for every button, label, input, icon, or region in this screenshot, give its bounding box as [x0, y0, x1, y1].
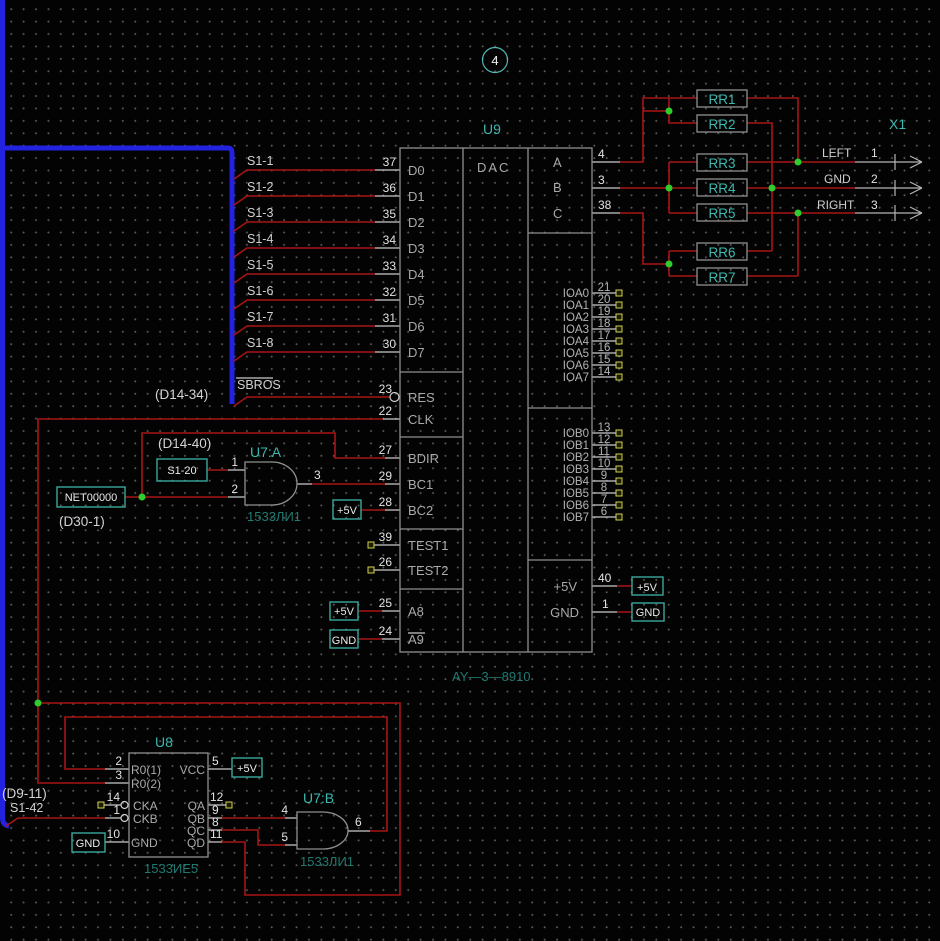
u8-pin-name-qd: QD [187, 836, 205, 850]
u9-pin-name-clk: CLK [408, 412, 434, 427]
u9-pin-name-d6: D6 [408, 319, 425, 334]
u9-pin-name-ioa5: IOA5 [563, 348, 589, 360]
u9-pin-name-ioa7: IOA7 [563, 372, 589, 384]
u9-pin-num-7: 7 [601, 494, 607, 506]
qb-qc-nets[interactable] [222, 818, 285, 845]
u9-pin-num-26: 26 [379, 555, 393, 569]
u9-pin-name-iob7: IOB7 [563, 512, 589, 524]
u8-pin-num-10: 10 [107, 827, 121, 841]
u9-pin-num-1: 1 [602, 597, 609, 611]
u9-core-label: DAC [477, 160, 510, 175]
u7b-part: 1533ЛИ1 [300, 854, 354, 869]
u7b-pin-6: 6 [355, 815, 362, 829]
u9-pin-name-b: B [553, 180, 562, 195]
u9-pin-num-9: 9 [601, 470, 607, 482]
s1-42-net[interactable] [6, 818, 105, 826]
u8-pin-num-5: 5 [212, 754, 219, 768]
label-d14-34: (D14-34) [155, 387, 208, 402]
net-label-s1-3[interactable]: S1-3 [247, 206, 273, 220]
u8-pin-num-2: 2 [115, 754, 122, 768]
u7a-pin-3: 3 [314, 468, 321, 482]
u9-pin-name-test2: TEST2 [408, 563, 448, 578]
s1-20-label[interactable]: S1-20 [167, 465, 196, 477]
resistor-output-nets[interactable] [747, 98, 855, 276]
u8-pin-num-14: 14 [107, 790, 121, 804]
u9-pin-name-a: A [553, 155, 562, 170]
u9-pin-num-30: 30 [383, 337, 397, 351]
u9-pin-name-ioa2: IOA2 [563, 312, 589, 324]
x1-pin-num-3: 3 [871, 198, 878, 212]
x1-pin-num-1: 1 [871, 146, 878, 160]
u9-pin-name-iob4: IOB4 [563, 476, 590, 488]
x1-ref: X1 [889, 116, 906, 132]
u9-pin-num-20: 20 [598, 294, 611, 306]
u7a-part: 1533ЛИ1 [247, 509, 301, 524]
u9-pin-name-res: RES [408, 390, 435, 405]
x1-pin-name-gnd: GND [824, 172, 851, 186]
u9-pin-name-bc1: BC1 [408, 477, 433, 492]
rr5-label[interactable]: RR5 [708, 206, 735, 221]
u9-pin-name-iob3: IOB3 [563, 464, 589, 476]
cka-inversion-bubble [121, 802, 128, 809]
u9-pin-num-18: 18 [598, 318, 611, 330]
u9-pin-name-bdir: BDIR [408, 451, 439, 466]
u9-pin-name-iob0: IOB0 [563, 428, 589, 440]
u9-pin-name-ioa4: IOA4 [563, 336, 590, 348]
rr1-label[interactable]: RR1 [708, 92, 735, 107]
x1-pin-num-2: 2 [871, 172, 878, 186]
p5v-label-a8[interactable]: +5V [334, 606, 355, 618]
u8-pin-name-r02: R0(2) [131, 777, 161, 791]
u8-pin-num-3: 3 [115, 768, 122, 782]
rr7-label[interactable]: RR7 [708, 270, 735, 285]
u9-pin-num-22: 22 [379, 404, 393, 418]
u9-pin-num-8: 8 [601, 482, 607, 494]
u9-pin-name-d5: D5 [408, 293, 425, 308]
net-label-s1-7[interactable]: S1-7 [247, 310, 273, 324]
u7b-gate-body[interactable] [297, 812, 348, 849]
u9-pin-name-a8: A8 [408, 604, 424, 619]
u8-pin-name-cka: CKA [133, 799, 158, 813]
u8-pin-num-11: 11 [210, 827, 223, 841]
u8-pin-name-gnd: GND [131, 836, 158, 850]
unconnected-pin-squares [98, 290, 622, 808]
u9-pin-name-ioa3: IOA3 [563, 324, 589, 336]
bus-top[interactable] [0, 148, 232, 404]
u7b-pin-5: 5 [281, 830, 288, 844]
net-label-s1-1[interactable]: S1-1 [247, 154, 273, 168]
rr3-label[interactable]: RR3 [708, 156, 735, 171]
u9-pin-num-25: 25 [379, 596, 393, 610]
u9-pin-name-p5v: +5V [554, 579, 578, 594]
u9-pin-num-37: 37 [383, 155, 397, 169]
u8-pin-name-r01: R0(1) [131, 763, 161, 777]
u9-pin-num-32: 32 [383, 285, 397, 299]
schematic-canvas[interactable]: 4 U9 DAC AY—3—8910 D0 D1 D2 D3 D4 D5 D6 … [0, 0, 940, 941]
u9-pin-num-12: 12 [598, 434, 611, 446]
u9-pin-num-19: 19 [598, 306, 611, 318]
u9-pin-name-gnd: GND [550, 605, 579, 620]
u9-pin-num-17: 17 [598, 330, 611, 342]
u8-pin-num-1: 1 [113, 803, 120, 817]
u9-pin-name-c: C [553, 206, 562, 221]
u9-pin-num-11: 11 [598, 446, 610, 458]
u9-pin-num-40: 40 [598, 571, 612, 585]
pin-stubs [104, 162, 620, 845]
connector-lines [855, 154, 922, 221]
u9-pin-name-iob6: IOB6 [563, 500, 589, 512]
u9-pin-num-13: 13 [598, 422, 611, 434]
ckb-inversion-bubble [121, 815, 128, 822]
gnd-label-u8[interactable]: GND [76, 838, 101, 850]
net-label-sbros[interactable]: SBROS [237, 378, 281, 392]
u9-pin-num-24: 24 [379, 624, 393, 638]
u8-pin-name-vcc: VCC [180, 763, 206, 777]
rr6-label[interactable]: RR6 [708, 245, 735, 260]
u9-pin-name-d2: D2 [408, 215, 425, 230]
gnd-label-pin1[interactable]: GND [636, 607, 661, 619]
u9-pin-name-ioa1: IOA1 [563, 300, 589, 312]
u8-pin-name-ckb: CKB [133, 812, 158, 826]
u9-pin-name-d0: D0 [408, 163, 425, 178]
u8-ref: U8 [155, 734, 173, 750]
label-d14-40: (D14-40) [158, 436, 211, 451]
net-label-s1-6[interactable]: S1-6 [247, 284, 273, 298]
p5v-label-pin40[interactable]: +5V [637, 582, 658, 594]
u9-pin-name-test1: TEST1 [408, 538, 448, 553]
net-label-s1-5[interactable]: S1-5 [247, 258, 273, 272]
x1-pin-name-right: RIGHT [817, 198, 855, 212]
u7b-pin-4: 4 [281, 803, 288, 817]
label-d9-11: (D9-11) [2, 786, 47, 801]
u9-pin-num-39: 39 [379, 530, 393, 544]
u9-pin-num-16: 16 [598, 342, 611, 354]
u9-pin-num-4: 4 [598, 147, 605, 161]
u9-pin-num-35: 35 [383, 207, 397, 221]
u9-pin-num-10: 10 [598, 458, 611, 470]
net-label-s1-8[interactable]: S1-8 [247, 336, 273, 350]
u9-pin-name-a9: A9 [408, 632, 424, 647]
u9-pin-num-14: 14 [598, 366, 611, 378]
u7a-pin-2: 2 [231, 482, 238, 496]
net00000-label[interactable]: NET00000 [65, 492, 118, 504]
sheet-number: 4 [491, 53, 498, 68]
p5v-label-bc2[interactable]: +5V [337, 505, 358, 517]
u7a-ref: U7:A [250, 444, 282, 460]
label-d30-1: (D30-1) [59, 514, 105, 529]
u9-ref: U9 [483, 121, 501, 137]
u9-pin-name-iob2: IOB2 [563, 452, 589, 464]
net-label-s1-2[interactable]: S1-2 [247, 180, 273, 194]
u9-pin-num-38: 38 [598, 198, 612, 212]
net-label-s1-4[interactable]: S1-4 [247, 232, 273, 246]
u9-pin-name-d7: D7 [408, 345, 425, 360]
u9-pin-num-3: 3 [598, 173, 605, 187]
u9-pin-name-ioa6: IOA6 [563, 360, 589, 372]
u9-pin-num-34: 34 [383, 233, 397, 247]
u9-pin-num-23: 23 [379, 382, 393, 396]
u9-pin-num-15: 15 [598, 354, 611, 366]
channel-a-net[interactable] [620, 98, 697, 162]
rr2-label[interactable]: RR2 [708, 117, 735, 132]
u9-pin-num-29: 29 [379, 469, 393, 483]
u8-pin-num-12: 12 [210, 790, 224, 804]
u9-part: AY—3—8910 [452, 669, 531, 684]
u7a-pin-1: 1 [231, 455, 238, 469]
x1-pin-name-left: LEFT [822, 146, 852, 160]
bus-left-edge[interactable] [3, 0, 10, 826]
u9-pin-num-21: 21 [598, 282, 611, 294]
u9-pin-num-6: 6 [601, 506, 607, 518]
u9-pin-name-d4: D4 [408, 267, 425, 282]
addr-power-net[interactable] [358, 586, 632, 639]
channel-c-net[interactable] [620, 213, 697, 276]
u9-pin-name-iob1: IOB1 [563, 440, 589, 452]
u9-pin-name-d3: D3 [408, 241, 425, 256]
u7a-gate-body[interactable] [245, 462, 297, 505]
gnd-label-a9[interactable]: GND [332, 635, 357, 647]
u9-pin-num-28: 28 [379, 495, 393, 509]
u9-pin-name-d1: D1 [408, 189, 425, 204]
channel-b-net[interactable] [620, 162, 697, 213]
u8-part: 1533ИЕ5 [144, 861, 198, 876]
u7b-ref: U7:B [303, 790, 334, 806]
u9-pin-name-bc2: BC2 [408, 503, 433, 518]
u9-pin-num-31: 31 [383, 311, 397, 325]
u8-pin-name-qa: QA [188, 799, 205, 813]
u9-pin-name-ioa0: IOA0 [563, 288, 589, 300]
u9-pin-name-iob5: IOB5 [563, 488, 589, 500]
u9-pin-num-27: 27 [379, 443, 393, 457]
p5v-label-u8[interactable]: +5V [237, 763, 258, 775]
u9-pin-num-33: 33 [383, 259, 397, 273]
rr4-label[interactable]: RR4 [708, 181, 735, 196]
net-label-s1-42[interactable]: S1-42 [10, 801, 43, 815]
u9-pin-num-36: 36 [383, 181, 397, 195]
